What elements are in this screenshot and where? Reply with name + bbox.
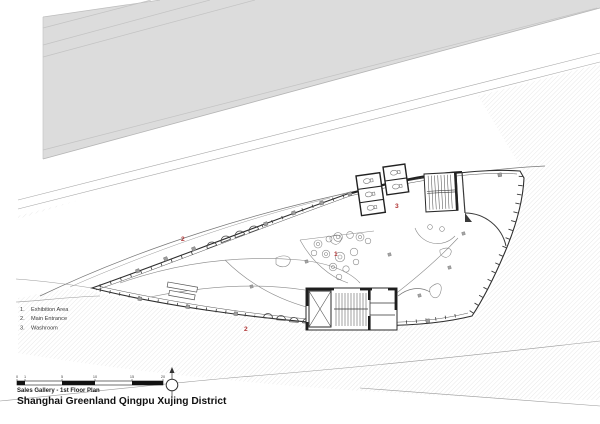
scale-bar: 0 1 5 10 15 20 xyxy=(16,375,165,385)
scale-tick-10: 10 xyxy=(93,375,97,379)
elevator xyxy=(309,291,331,327)
legend-label: Exhibition Area xyxy=(31,307,69,313)
label-washroom: 3 xyxy=(395,203,399,210)
scale-tick-0: 0 xyxy=(16,375,18,379)
legend-label: Washroom xyxy=(31,325,58,331)
label-entrance-south: 2 xyxy=(244,326,248,333)
project-title: Shanghai Greenland Qingpu Xujing Distric… xyxy=(17,396,227,407)
scale-tick-1: 1 xyxy=(24,375,26,379)
title-block: Sales Gallery - 1st Floor Plan Shanghai … xyxy=(17,388,227,407)
legend-num: 1. xyxy=(20,307,25,313)
drawing-sheet: 2 1 3 2 1. Exhibition Area 2. Main Entra… xyxy=(0,0,600,424)
legend-num: 2. xyxy=(20,316,25,322)
scale-tick-5: 5 xyxy=(61,375,63,379)
stair-northeast xyxy=(424,172,459,212)
core-stair xyxy=(334,293,368,326)
legend-num: 3. xyxy=(20,325,25,331)
scale-tick-15: 15 xyxy=(130,375,134,379)
label-entrance-north: 2 xyxy=(181,236,185,243)
drawing-phase-title: Sales Gallery - 1st Floor Plan xyxy=(17,388,100,394)
legend-label: Main Entrance xyxy=(31,316,67,322)
scale-tick-20: 20 xyxy=(161,375,165,379)
label-exhibition: 1 xyxy=(334,251,338,258)
site-plan-drawing: 2 1 3 2 1. Exhibition Area 2. Main Entra… xyxy=(0,0,600,424)
